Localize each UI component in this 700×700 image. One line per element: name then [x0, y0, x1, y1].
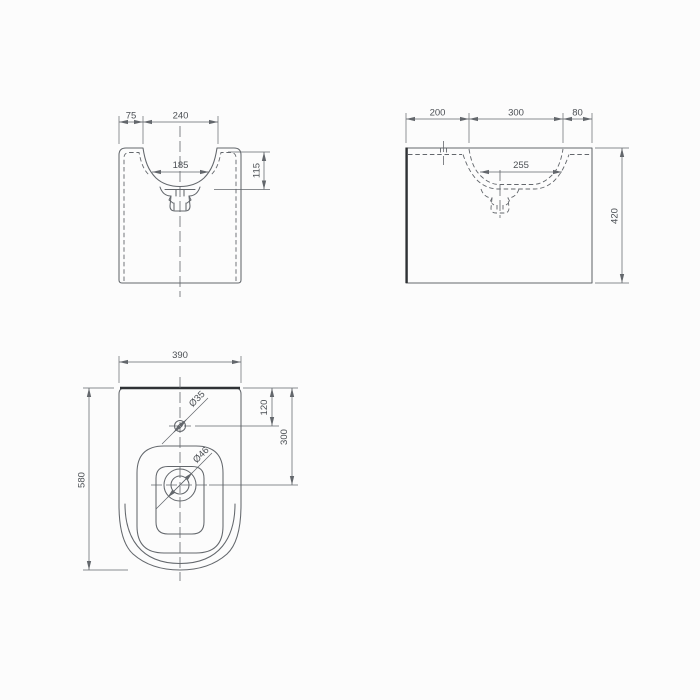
front-dim-label-bowl-floor: 185 — [173, 160, 189, 171]
front-hidden-edge-left — [124, 153, 149, 282]
drawing-sheet: 75 240 185 115 — [0, 0, 700, 700]
side-dimensions: 200 300 80 255 420 — [406, 108, 629, 284]
front-view: 75 240 185 115 — [119, 111, 270, 298]
plan-dimensions: 390 580 120 300 — [77, 350, 299, 570]
engineering-drawing-canvas: 75 240 185 115 — [0, 0, 700, 700]
plan-view: Ø35 Ø46 390 580 120 300 — [77, 350, 299, 581]
front-dimensions: 75 240 185 115 — [119, 111, 270, 190]
plan-dim-label-width: 390 — [172, 350, 188, 361]
side-body-outline — [406, 148, 592, 283]
plan-dim-label-depth: 580 — [77, 472, 88, 488]
side-view: 200 300 80 255 420 — [406, 108, 629, 284]
side-tap-hole-hidden — [441, 141, 447, 165]
front-dim-label-opening-width: 240 — [173, 111, 189, 122]
side-drain-flange-left — [481, 189, 494, 205]
side-dim-label-back-deck: 200 — [430, 108, 446, 119]
side-drain-flange-right — [506, 189, 519, 205]
plan-leader-arrow-drain-upper — [180, 473, 193, 486]
plan-label-tap-hole-diameter: Ø35 — [187, 389, 207, 409]
side-dim-label-bowl-floor-length: 255 — [513, 160, 529, 171]
side-dim-label-opening-length: 300 — [508, 108, 524, 119]
side-drain-fitting-hidden — [481, 170, 519, 218]
front-dim-label-bowl-depth: 115 — [252, 163, 263, 178]
plan-leader-arrow-drain-lower — [168, 485, 181, 498]
side-dim-label-height: 420 — [610, 208, 621, 224]
front-dim-label-left-deck: 75 — [126, 111, 137, 122]
plan-dim-label-drain-offset: 300 — [279, 429, 290, 445]
front-hidden-edge-right — [211, 153, 236, 282]
plan-dim-label-tap-offset: 120 — [259, 400, 270, 416]
side-dim-label-front-deck: 80 — [572, 108, 583, 119]
plan-extension-lines-depth — [83, 388, 128, 570]
